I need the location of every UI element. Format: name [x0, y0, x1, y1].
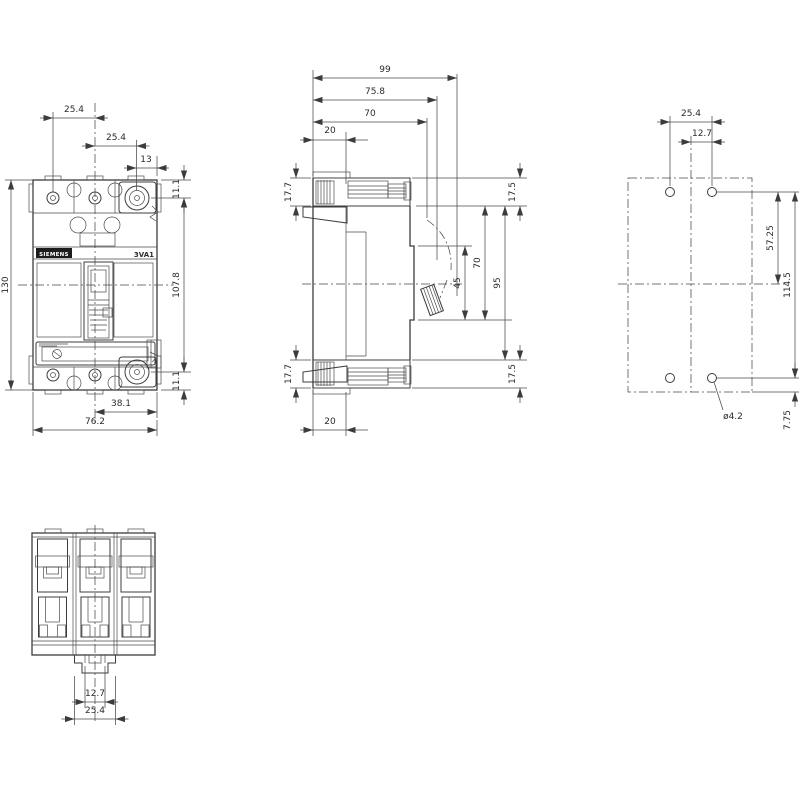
dim-front-top-offset: 11.1 [172, 179, 182, 199]
dim-side-terminal-height-bottom: 17.7 [284, 364, 294, 384]
dim-drill-hole-pitch-x: 25.4 [681, 109, 701, 119]
side-view-dimensions: 99 75.8 70 20 17.7 17.7 [284, 65, 527, 436]
dim-side-top-margin: 17.5 [508, 182, 518, 202]
pole-terminal-tunnels [36, 539, 154, 637]
drilling-plan-view: 25.4 12.7 57.25 114.5 7.75 ø4.2 [618, 109, 799, 430]
dim-drill-hole-pitch-y: 114.5 [783, 272, 793, 298]
front-view-dimensions: 25.4 25.4 13 11.1 107.8 [1, 105, 191, 436]
dim-side-front-height: 70 [473, 257, 483, 269]
front-view-body: SIEMENS 3VA1 [18, 103, 172, 425]
dim-side-handle-window: 45 [453, 277, 463, 288]
dim-bottom-slot-width: 12.7 [85, 689, 105, 699]
side-view: 99 75.8 70 20 17.7 17.7 [284, 65, 527, 436]
mounting-hole [666, 188, 675, 197]
dim-side-terminal-height-top: 17.7 [284, 182, 294, 202]
dim-front-pole-to-edge: 13 [140, 155, 151, 165]
dim-side-overall-depth: 99 [379, 65, 391, 75]
dim-front-overall-height: 130 [1, 276, 11, 293]
dim-bottom-foot-width: 25.4 [85, 706, 105, 716]
dim-side-terminal-depth-bottom: 20 [324, 417, 336, 427]
drilling-plan-plate [618, 136, 788, 392]
front-view: SIEMENS 3VA1 [1, 103, 191, 436]
dim-front-center-to-edge: 38.1 [111, 399, 131, 409]
dim-drill-hole-to-edge: 7.75 [783, 410, 793, 430]
dim-side-body-height: 95 [493, 277, 503, 288]
bottom-view: 12.7 25.4 [32, 525, 155, 725]
side-view-body [302, 172, 462, 394]
mounting-hole [708, 374, 717, 383]
dim-side-bottom-margin: 17.5 [508, 364, 518, 384]
dim-front-pole-pitch-2: 25.4 [106, 133, 126, 143]
dim-front-overall-width: 76.2 [85, 417, 105, 427]
side-toggle-handle [421, 284, 444, 315]
dim-front-pole-pitch-1: 25.4 [64, 105, 84, 115]
model-label: 3VA1 [134, 251, 154, 259]
dim-drill-hole-to-center: 12.7 [692, 129, 712, 139]
mounting-hole [708, 188, 717, 197]
mounting-hole [666, 374, 675, 383]
dim-side-depth-to-handle: 75.8 [365, 87, 385, 97]
handle-travel-arc [427, 220, 451, 270]
drilling-plan-dimensions: 25.4 12.7 57.25 114.5 7.75 ø4.2 [657, 109, 799, 430]
dim-side-body-depth: 70 [364, 109, 376, 119]
brand-label: SIEMENS [39, 252, 69, 258]
dim-drill-hole-to-mid: 57.25 [766, 225, 776, 251]
dim-side-terminal-depth-top: 20 [324, 126, 336, 136]
dimensional-drawing: SIEMENS 3VA1 [0, 0, 800, 800]
mounting-plate-outline [628, 178, 752, 392]
dim-drill-hole-diameter: ø4.2 [723, 412, 743, 422]
dim-front-bottom-offset: 11.1 [172, 371, 182, 391]
dim-front-inner-height: 107.8 [172, 272, 182, 298]
